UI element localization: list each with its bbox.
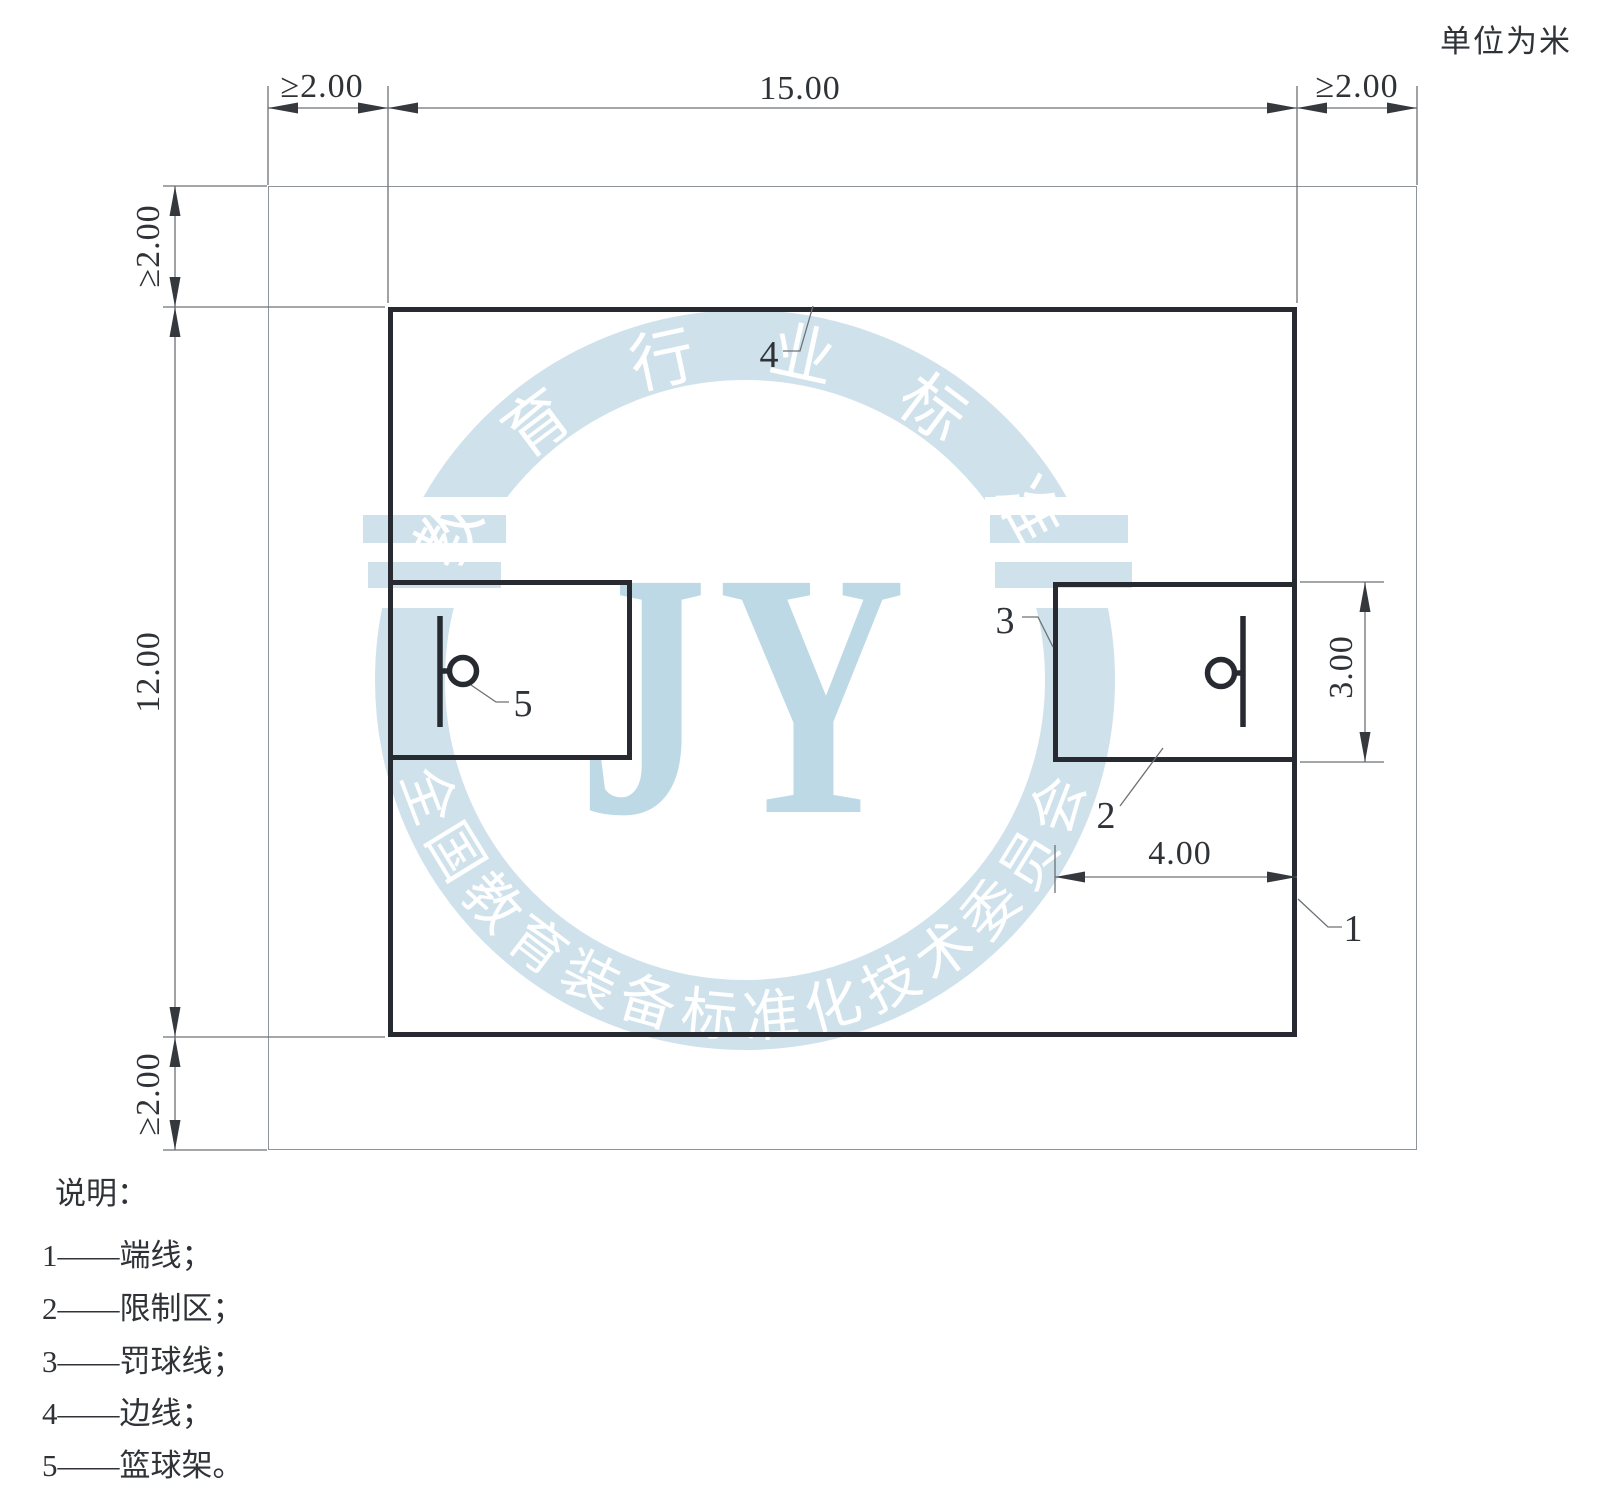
diagram-page: 全国教育装备标准化技术委员会 全国教育装备标准化技术委员会 教 育 行 业 标 … (0, 0, 1600, 1494)
dim-key-depth: 3.00 (1323, 635, 1361, 699)
callout-free-throw-line: 3 (996, 599, 1015, 643)
dim-court-width: 15.00 (759, 70, 841, 108)
legend-item-sideline: 4——边线； (42, 1388, 213, 1433)
dim-key-width: 4.00 (1148, 835, 1212, 873)
units-note: 单位为米 (1440, 16, 1572, 61)
dim-buffer-top: ≥2.00 (130, 204, 168, 287)
legend-item-endline: 1——端线； (42, 1230, 213, 1275)
restricted-area-left (388, 580, 632, 760)
callout-sideline: 4 (760, 333, 779, 377)
dim-buffer-bottom: ≥2.00 (130, 1052, 168, 1135)
legend-item-restricted-area: 2——限制区； (42, 1283, 244, 1328)
legend: 说明： 1——端线； 2——限制区； 3——罚球线； 4——边线； 5——篮球架… (42, 1168, 148, 1213)
legend-item-hoop: 5——篮球架。 (42, 1440, 244, 1485)
callout-restricted-area: 2 (1097, 794, 1116, 838)
legend-heading: 说明： (55, 1168, 148, 1213)
callout-endline: 1 (1344, 907, 1363, 951)
dim-buffer-left: ≥2.00 (280, 68, 363, 106)
dim-court-length: 12.00 (130, 631, 168, 713)
dim-buffer-right: ≥2.00 (1315, 68, 1398, 106)
legend-item-free-throw-line: 3——罚球线； (42, 1336, 244, 1381)
callout-hoop: 5 (514, 682, 533, 726)
restricted-area-right (1053, 582, 1297, 762)
